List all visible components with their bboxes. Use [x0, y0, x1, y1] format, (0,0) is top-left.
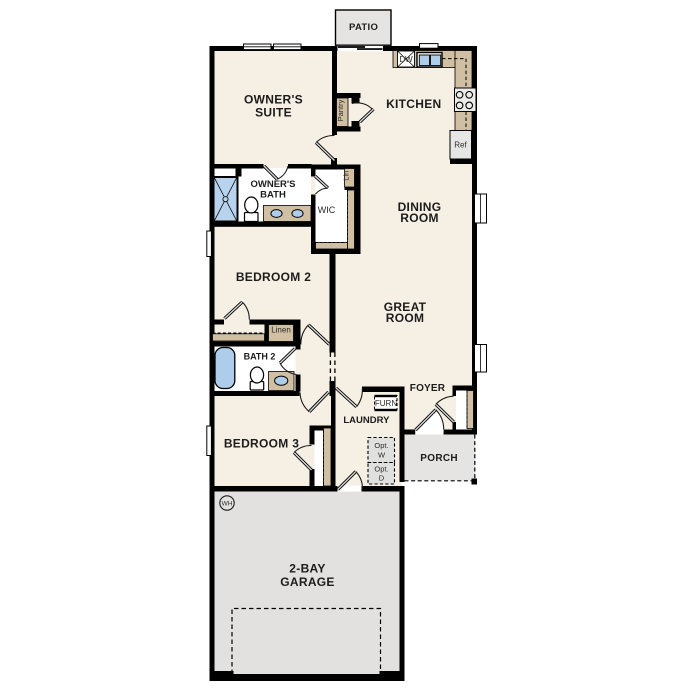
svg-text:D: D — [379, 474, 385, 483]
svg-text:PORCH: PORCH — [420, 453, 458, 464]
svg-text:ROOM: ROOM — [400, 211, 439, 225]
svg-text:KITCHEN: KITCHEN — [386, 97, 441, 111]
svg-text:W: W — [378, 451, 386, 460]
svg-text:LAUNDRY: LAUNDRY — [343, 415, 390, 426]
svg-text:WIC: WIC — [318, 205, 336, 215]
svg-text:FOYER: FOYER — [410, 383, 446, 394]
svg-text:BATH 2: BATH 2 — [244, 351, 276, 361]
svg-text:Ref: Ref — [454, 141, 467, 150]
svg-text:2-BAY: 2-BAY — [289, 562, 325, 576]
svg-text:BATH: BATH — [260, 189, 286, 200]
svg-text:Opt.: Opt. — [374, 441, 388, 450]
svg-text:FURN: FURN — [375, 399, 397, 408]
svg-text:PATIO: PATIO — [349, 22, 378, 33]
svg-text:ROOM: ROOM — [386, 311, 425, 325]
svg-text:Lin: Lin — [342, 171, 351, 181]
svg-text:WH: WH — [222, 501, 233, 508]
svg-text:OWNER'S: OWNER'S — [244, 92, 303, 106]
svg-text:Pantry: Pantry — [336, 99, 345, 121]
svg-text:Linen: Linen — [271, 326, 291, 335]
svg-text:BEDROOM 2: BEDROOM 2 — [236, 270, 311, 284]
svg-text:DW: DW — [399, 55, 413, 64]
svg-text:GARAGE: GARAGE — [280, 575, 334, 589]
svg-text:SUITE: SUITE — [255, 106, 292, 120]
svg-text:BEDROOM 3: BEDROOM 3 — [224, 437, 299, 451]
svg-text:Opt.: Opt. — [374, 465, 388, 474]
